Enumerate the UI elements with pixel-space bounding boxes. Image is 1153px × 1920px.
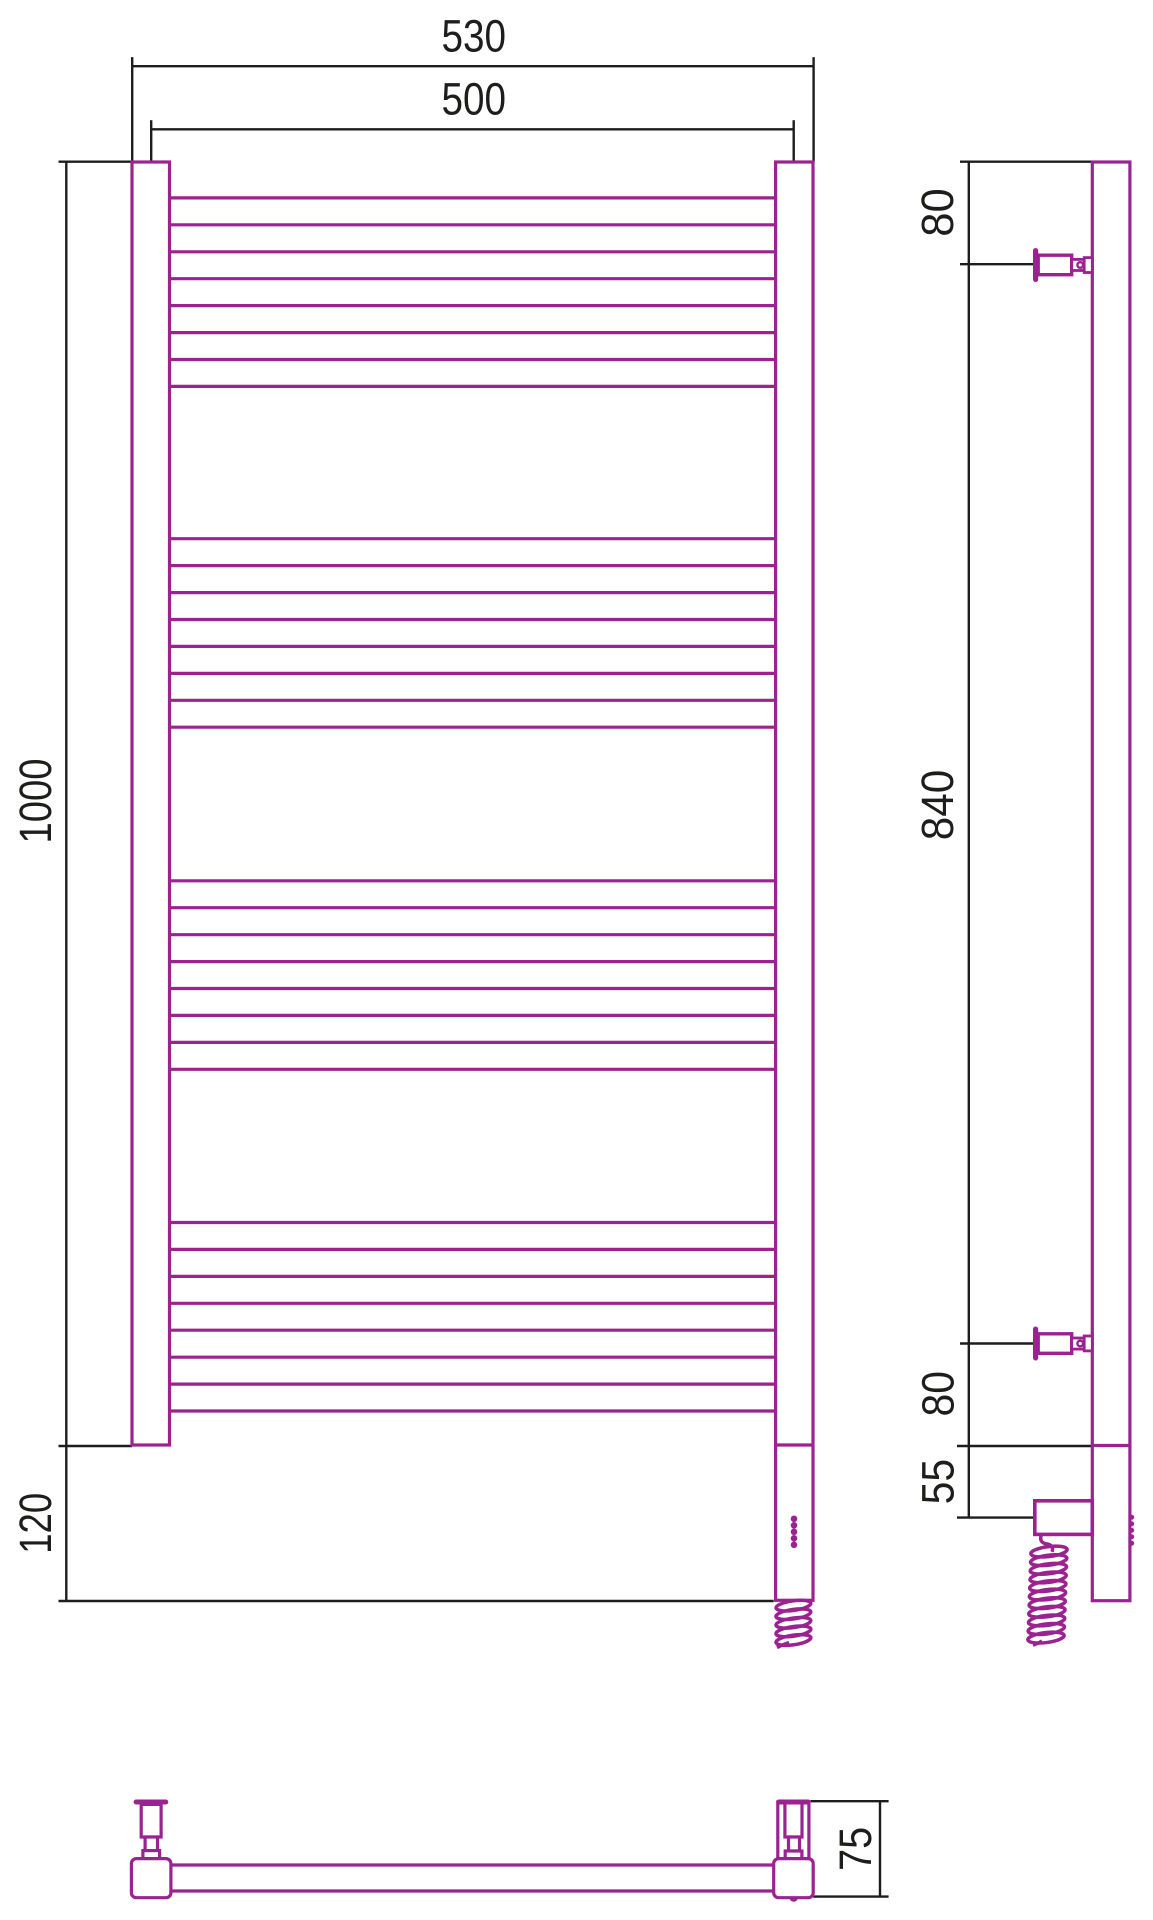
svg-text:530: 530 — [442, 11, 507, 62]
svg-text:1000: 1000 — [10, 759, 61, 844]
svg-text:80: 80 — [912, 1371, 963, 1417]
svg-text:840: 840 — [912, 770, 963, 841]
svg-text:500: 500 — [442, 74, 507, 125]
svg-text:55: 55 — [912, 1459, 963, 1505]
svg-text:120: 120 — [10, 1493, 61, 1554]
svg-text:80: 80 — [912, 188, 963, 237]
svg-text:75: 75 — [830, 1827, 881, 1871]
